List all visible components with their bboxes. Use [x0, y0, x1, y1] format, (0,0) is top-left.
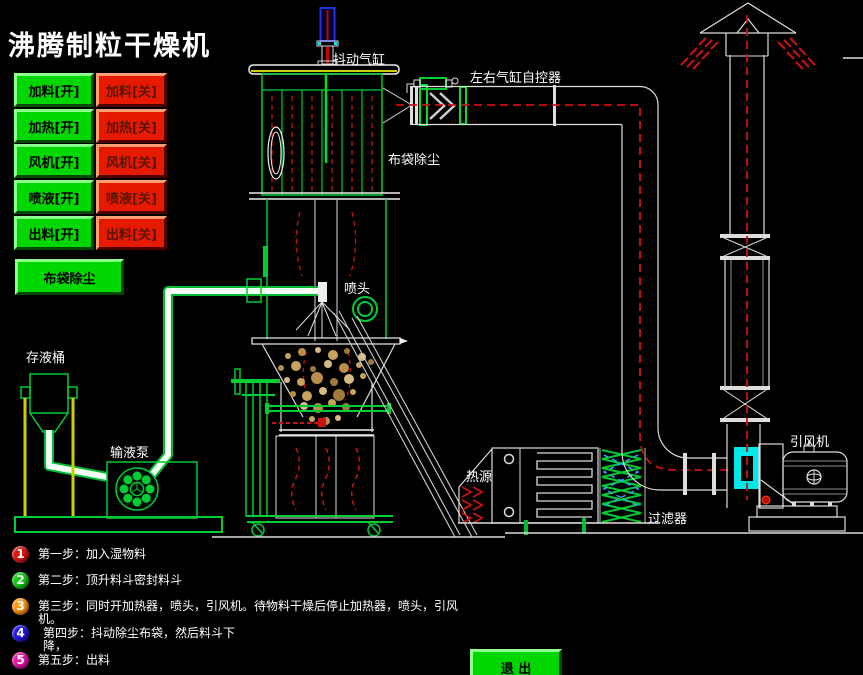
discharge-chute — [334, 311, 477, 537]
shaker-cylinder-label: 抖动气缸 — [333, 52, 385, 68]
induced-draft-fan — [749, 441, 847, 531]
step-3-badge: 3 — [12, 598, 29, 615]
discharge-off-button[interactable]: 出料[关] — [96, 216, 167, 250]
bag-filter-label: 布袋除尘 — [388, 153, 440, 168]
tank-outlet-pipe — [49, 430, 107, 477]
heat-source-label: 热源 — [466, 470, 492, 485]
heat-on-button[interactable]: 加热[开] — [14, 109, 94, 143]
exhaust-plume — [681, 38, 815, 69]
hopper-lift-frame — [231, 369, 280, 517]
step-1-badge: 1 — [12, 546, 29, 563]
air-chamber — [276, 436, 374, 518]
step-5-badge: 5 — [12, 652, 29, 669]
heat-off-button[interactable]: 加热[关] — [96, 109, 167, 143]
lr-cylinder-controller-label: 左右气缸自控器 — [470, 70, 561, 86]
spray-head-label: 喷头 — [344, 282, 370, 297]
discharge-on-button[interactable]: 出料[开] — [14, 216, 94, 250]
spray-on-button[interactable]: 喷液[开] — [14, 180, 94, 214]
bag-filter-section — [249, 74, 400, 199]
heater — [459, 448, 598, 523]
lr-cylinder-icon — [420, 78, 446, 89]
top-duct — [383, 78, 730, 470]
fan-column — [727, 424, 760, 508]
step-1-text: 第一步：加入湿物料 — [38, 548, 146, 561]
trolley — [247, 516, 393, 536]
exit-button[interactable]: 退 出 — [470, 649, 562, 675]
heating-coil-icon — [537, 453, 592, 517]
induced-draft-fan-label: 引风机 — [790, 435, 829, 450]
page-title: 沸腾制粒干燥机 — [8, 24, 211, 63]
exhaust-stack — [681, 3, 815, 500]
fan-off-button[interactable]: 风机[关] — [96, 144, 167, 178]
spray-off-button[interactable]: 喷液[关] — [96, 180, 167, 214]
hmi-screen: 布袋除尘 喷头 — [0, 0, 863, 675]
sight-ring-icon — [353, 297, 377, 321]
step-2-badge: 2 — [12, 572, 29, 589]
bag-dust-button[interactable]: 布袋除尘 — [15, 259, 124, 295]
caster-wheel-icon — [368, 524, 380, 536]
fan-on-button[interactable]: 风机[开] — [14, 144, 94, 178]
liquid-feed-pipe — [150, 279, 318, 477]
liquid-tank-icon — [21, 374, 77, 432]
step-3-text: 第三步：同时开加热器，喷头，引风机。待物料干燥后停止加热器，喷头，引风机。 — [38, 600, 472, 626]
feed-on-button[interactable]: 加料[开] — [14, 73, 94, 107]
product-hopper — [265, 382, 391, 435]
step-4-text: 第四步：抖动除尘布袋，然后料斗下降， — [43, 627, 249, 653]
fan-motor-icon — [783, 452, 847, 502]
step-5-text: 第五步：出料 — [38, 654, 110, 667]
pump-platform — [15, 517, 222, 532]
liquid-pump-label: 输液泵 — [110, 445, 149, 461]
caster-wheel-icon — [252, 524, 264, 536]
filter-label: 过滤器 — [648, 512, 687, 527]
step-2-text: 第二步：顶升料斗密封料斗 — [38, 574, 182, 587]
feed-off-button[interactable]: 加料[关] — [96, 73, 167, 107]
spray-chamber — [263, 199, 386, 341]
airflow-centerline — [396, 105, 730, 470]
liquid-tank-label: 存液桶 — [26, 351, 65, 366]
indicator-dot — [762, 496, 770, 504]
hot-air-arrows — [462, 487, 482, 523]
step-4-badge: 4 — [12, 625, 29, 642]
